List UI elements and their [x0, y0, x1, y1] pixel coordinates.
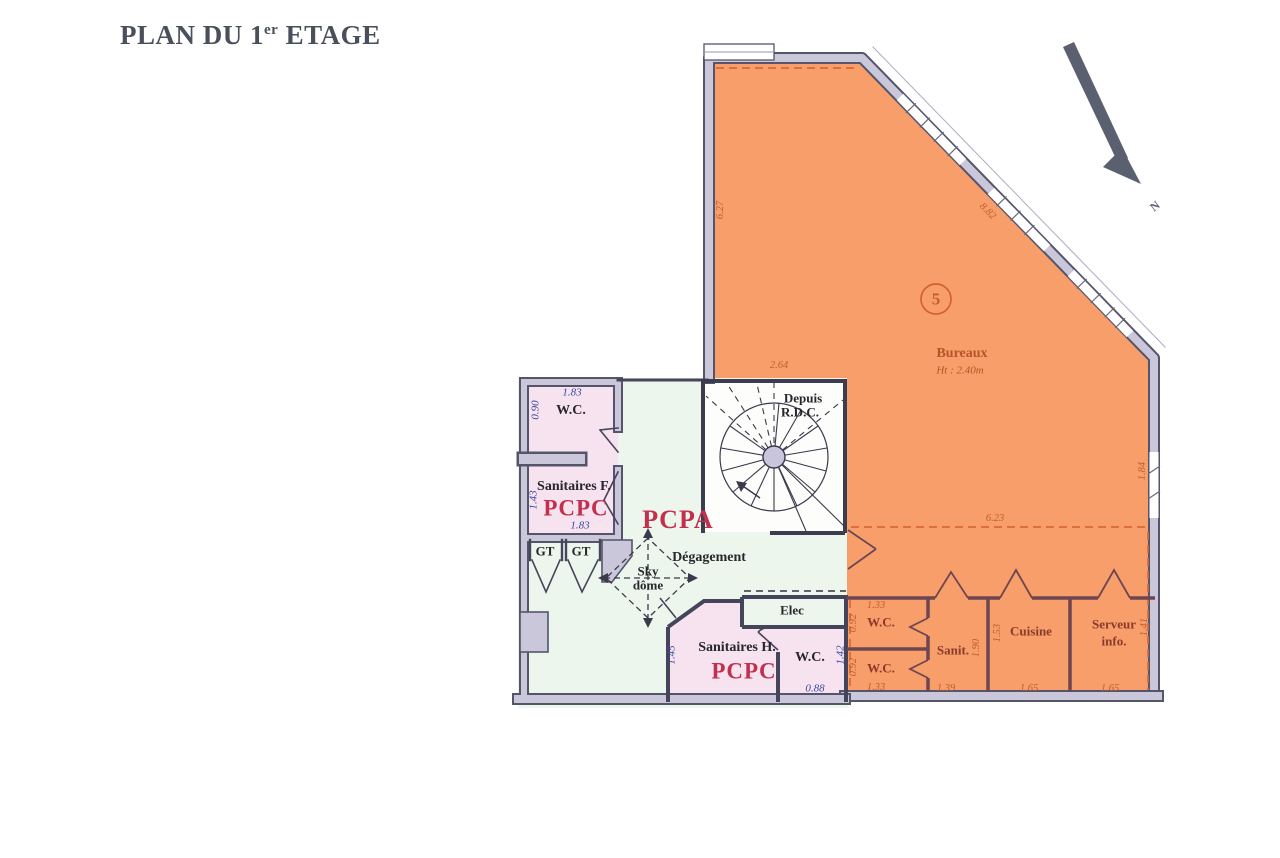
room-label-wc-mid: W.C.	[795, 651, 825, 665]
dim-wc-top-depth: 0.92	[849, 614, 860, 632]
dim-corridor: 6.23	[986, 514, 1004, 525]
room-label-sanitaires-f: Sanitaires F.	[537, 480, 611, 494]
room-label-degagement: Dégagement	[672, 551, 746, 565]
sky-dome-label-2: dôme	[633, 579, 663, 592]
room-label-elec: Elec	[780, 604, 804, 617]
dim-wc-top-width: 1.33	[867, 601, 885, 612]
room-label-serveur-1: Serveur	[1092, 618, 1136, 631]
stairs-label-2: R.D.C.	[781, 406, 819, 419]
room-label-wc-top: W.C.	[867, 616, 895, 629]
page-title: PLAN DU 1er ETAGE	[120, 20, 381, 51]
room-label-gt-right: GT	[572, 545, 591, 558]
room-label-sanit: Sanit.	[937, 644, 969, 657]
dim-sanit-depth: 1.90	[972, 639, 983, 657]
dim-cuisine-depth: 1.53	[993, 624, 1004, 642]
dim-left-wall: 6.27	[716, 201, 727, 219]
room-label-cuisine: Cuisine	[1010, 625, 1052, 638]
room-label-sanitaires-h: Sanitaires H.	[698, 641, 776, 655]
room-label-bureaux: Bureaux	[936, 347, 987, 361]
dim-right-wall: 1.84	[1138, 462, 1149, 480]
room-label-wc-nw: W.C.	[556, 404, 586, 418]
floor-plan-drawing	[0, 0, 1280, 858]
dim-wc-mid-width: 0.88	[805, 684, 824, 695]
dim-wc-bottom-depth: 0.92	[849, 658, 860, 676]
floor-plan-page: PLAN DU 1er ETAGE N 5 Bureaux Ht : 2.40m…	[0, 0, 1280, 858]
code-pcpc-f: PCPC	[543, 497, 608, 520]
dim-wc-mid-depth: 1.42	[836, 645, 847, 664]
dim-sanitaires-h-depth: 1.45	[667, 645, 678, 664]
room-label-wc-bottom: W.C.	[867, 662, 895, 675]
dim-stair-notch: 2.64	[770, 361, 788, 372]
north-arrow	[1063, 42, 1141, 184]
stairs-label-1: Depuis	[784, 392, 822, 405]
room-label-gt-left: GT	[536, 545, 555, 558]
ceiling-height-label: Ht : 2.40m	[936, 366, 983, 377]
dim-wc-nw-width: 1.83	[562, 388, 581, 399]
room-label-serveur-2: info.	[1102, 635, 1127, 648]
dim-sanitaires-f-depth: 1.43	[529, 490, 540, 509]
lot-number: 5	[932, 291, 941, 308]
dim-serveur-width: 1.65	[1101, 684, 1119, 695]
dim-sanitaires-f-width: 1.83	[570, 521, 589, 532]
code-pcpa: PCPA	[642, 507, 713, 533]
code-pcpc-h: PCPC	[711, 660, 776, 683]
dim-serveur-depth: 1.41	[1140, 618, 1151, 636]
dim-cuisine-width: 1.65	[1020, 684, 1038, 695]
window-bay	[704, 44, 774, 60]
dim-wc-bottom-width: 1.33	[867, 683, 885, 694]
sky-dome-label-1: Sky	[638, 565, 659, 578]
dim-wc-nw-depth: 0.90	[531, 400, 542, 419]
dim-sanit-width: 1.39	[937, 684, 955, 695]
